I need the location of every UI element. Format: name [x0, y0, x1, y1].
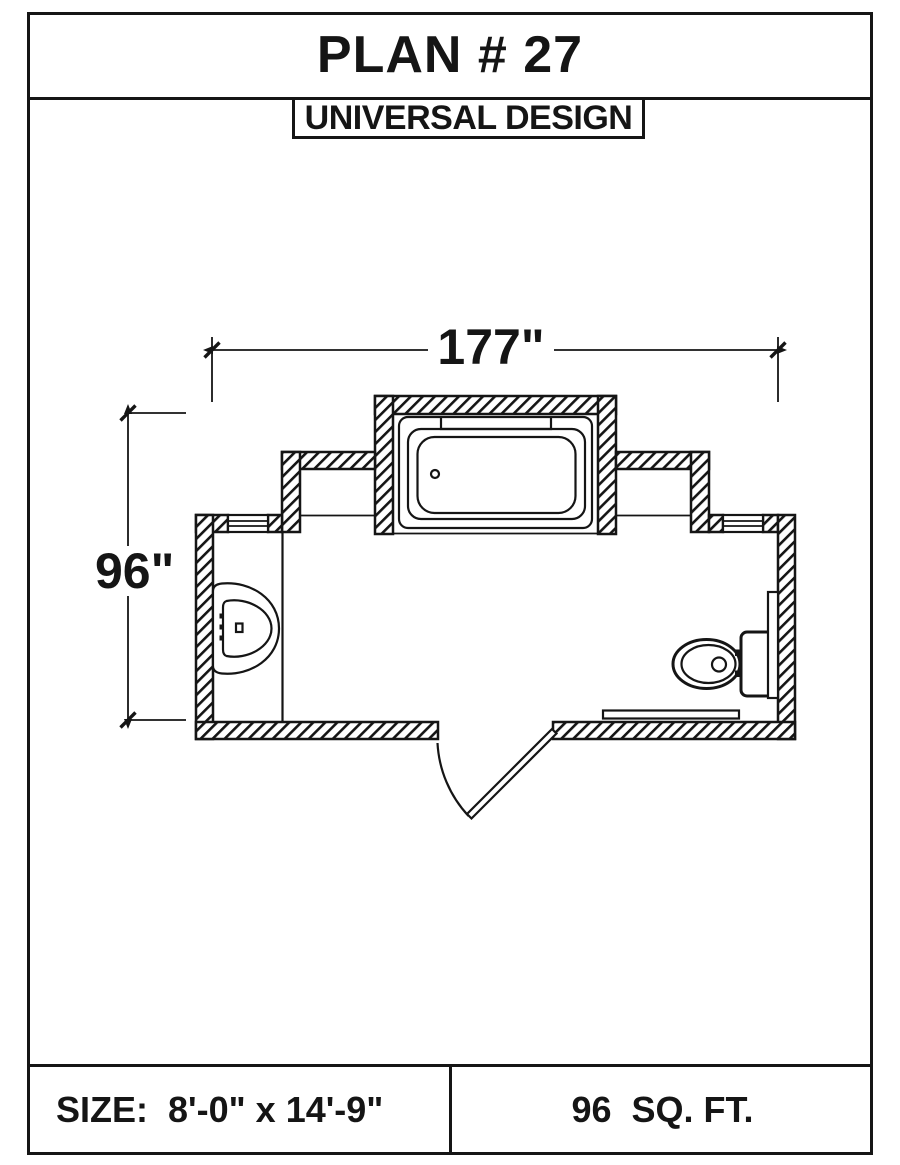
top-wall-right-a	[709, 515, 723, 532]
bathtub	[399, 417, 592, 528]
door-swing-arc	[438, 743, 469, 816]
width-dimension-label: 177"	[428, 322, 554, 372]
toilet-bowl	[673, 640, 740, 689]
toilet	[673, 632, 774, 696]
window-right	[723, 515, 763, 532]
wing-wall-left-vertical	[282, 452, 300, 532]
sink-faucet-handle	[220, 614, 224, 619]
door-leaf	[467, 729, 557, 819]
floor-plan-page: PLAN # 27 UNIVERSAL DESIGN	[0, 0, 900, 1165]
sink	[213, 583, 279, 673]
right-wall	[778, 515, 795, 739]
alcove-right-wall	[598, 396, 616, 534]
alcove-left-wall	[375, 396, 393, 534]
sink-faucet-handle	[220, 636, 224, 641]
bottom-wall-right	[553, 722, 795, 739]
alcove-top-wall	[375, 396, 616, 414]
depth-dimension-label: 96"	[95, 546, 169, 596]
toilet-seat-hinge	[735, 671, 742, 678]
area-label: 96 SQ. FT.	[452, 1064, 873, 1155]
bottom-wall-left	[196, 722, 438, 739]
grab-bar-right-wall	[768, 592, 778, 698]
size-label: SIZE: 8'-0" x 14'-9"	[30, 1064, 471, 1155]
top-wall-right-b	[763, 515, 778, 532]
left-wall	[196, 515, 213, 739]
window-left	[228, 515, 268, 532]
top-wall-left-b	[268, 515, 282, 532]
grab-bar-bottom-wall	[603, 711, 739, 719]
toilet-seat-hinge	[735, 650, 742, 657]
sink-spout	[220, 625, 224, 630]
entry-door	[438, 729, 557, 819]
wing-wall-right-vertical	[691, 452, 709, 532]
